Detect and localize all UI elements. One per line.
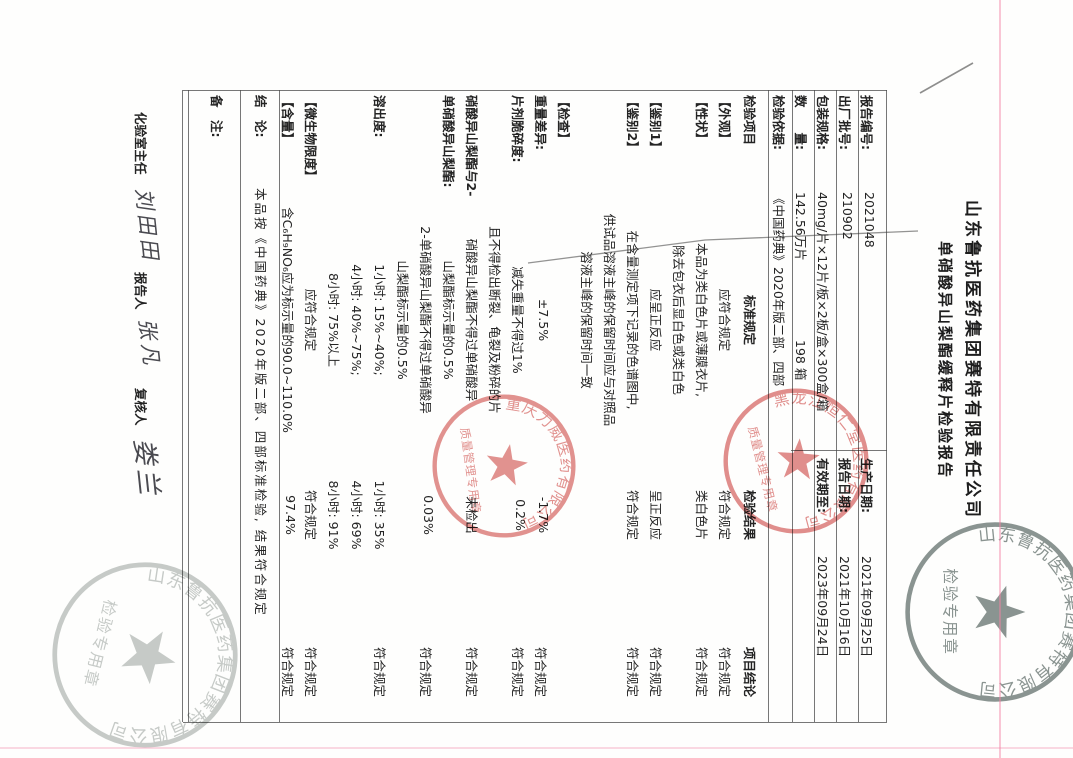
cell-result: 符合规定	[624, 435, 643, 595]
reporter-signature: 张凡	[132, 317, 167, 370]
table-row: 重量差异:±7.5%-1.7%符合规定	[529, 0, 551, 758]
cell-conclusion: 项目结论	[741, 602, 760, 742]
header-field-label: 出厂批号:	[836, 95, 855, 150]
table-row: 【检查】	[552, 0, 574, 758]
seal-caption: 检验专用章	[940, 568, 959, 655]
header-field-value: 《中国药典》2020年版二部、四部	[770, 192, 789, 386]
table-row: 4小时: 40%~75%;4小时: 69%	[345, 0, 367, 758]
cell-standard: 除去包衣后显白色或类白色	[670, 190, 689, 450]
cell-standard: 应呈正反应	[647, 190, 666, 450]
header-field-label: 包装规格:	[814, 95, 833, 150]
cell-standard: 8小时: 75%以上	[325, 190, 344, 450]
table-row: 片剂脆碎度:减失重量不得过1%0.2%符合规定	[506, 0, 528, 758]
seal-caption: 质量管理专用章	[457, 427, 483, 515]
header-field-row: 检验依据:《中国药典》2020年版二部、四部	[769, 0, 789, 758]
cell-standard: 1小时: 15%~40%;	[371, 190, 390, 450]
table-row: 【含量】含C₆H₉NO₆应为标示量的90.0~110.0%97.4%符合规定	[276, 0, 298, 758]
table-row: 【鉴别1】应呈正反应呈正反应符合规定	[644, 0, 666, 758]
cell-result: 8小时: 91%	[325, 435, 344, 595]
table-border-top	[886, 90, 887, 722]
document-page: 山东鲁抗医药集团赛特有限责任公司 单硝酸异山梨酯缓释片检验报告 报告编号:202…	[0, 0, 1073, 758]
seal-caption: 检验专用章	[80, 598, 120, 690]
star-icon	[119, 624, 182, 689]
remark-label: 备 注:	[209, 95, 223, 138]
table-row: 山梨酯标示量的0.5%	[391, 0, 413, 758]
cell-conclusion: 符合规定	[693, 602, 712, 742]
reporter-label: 报告人	[132, 272, 151, 310]
cell-standard: 应符合规定	[302, 190, 321, 450]
header-field-row: 数 量:142.56万片198 箱	[791, 0, 811, 758]
header-field-value: 210902	[840, 192, 855, 240]
cell-result: 97.4%	[283, 435, 298, 595]
cell-conclusion: 符合规定	[371, 602, 390, 742]
table-row: 2-单硝酸异山梨酯不得过单硝酸异0.03%符合规定	[414, 0, 436, 758]
table-row: 供试品溶液主峰的保留时间应与对照品	[598, 0, 620, 758]
table-row: 【微生物限度】应符合规定符合规定符合规定	[299, 0, 321, 758]
scanned-report-canvas: 山东鲁抗医药集团赛特有限责任公司 单硝酸异山梨酯缓释片检验报告 报告编号:202…	[0, 0, 1073, 758]
star-icon	[486, 442, 531, 489]
cell-standard: 含C₆H₉NO₆应为标示量的90.0~110.0%	[279, 190, 298, 450]
header-field-value: 2021年10月16日	[836, 556, 855, 657]
conclusion-label: 结 论:	[253, 95, 267, 138]
table-row: 且不得检出断裂、龟裂及粉碎的片	[483, 0, 505, 758]
cell-standard: 供试品溶液主峰的保留时间应与对照品	[601, 190, 620, 450]
cell-conclusion: 符合规定	[509, 602, 528, 742]
table-row: 单硝酸异山梨酯:山梨酯标示量的0.5%	[437, 0, 459, 758]
header-field-value: 2023年09月24日	[814, 556, 833, 657]
reviewer-label: 复核人	[132, 388, 151, 426]
table-row: 溶出度:1小时: 15%~40%;1小时: 35%符合规定	[368, 0, 390, 758]
cell-result: 符合规定	[302, 435, 321, 595]
table-row: 硝酸异山梨酯与2-硝酸异山梨酯不得过单硝酸异未检出符合规定	[460, 0, 482, 758]
cell-result: 1小时: 35%	[371, 435, 390, 595]
star-icon	[975, 586, 1025, 638]
header-field-row: 报告编号:2021048生产日期:2021年09月25日	[857, 0, 877, 758]
table-row: 除去包衣后显白色或类白色	[667, 0, 689, 758]
cell-conclusion: 符合规定	[647, 602, 666, 742]
header-field-value: 142.56万片	[792, 192, 811, 261]
cell-item: 【检查】	[555, 95, 574, 255]
table-row: 溶液主峰的保留时间一致	[575, 0, 597, 758]
seal-caption: 质量管理专用章	[745, 425, 780, 514]
star-icon	[776, 435, 825, 486]
red-quality-stamp-2: 重庆力威医药有限公司 质量管理专用章	[422, 384, 587, 549]
inspection-seal-stamp: 山东鲁抗医药集团赛特有限公司 检验专用章	[903, 520, 1073, 704]
cell-conclusion: 符合规定	[716, 602, 735, 742]
cell-conclusion: 符合规定	[463, 602, 482, 742]
cell-result: 4小时: 69%	[348, 435, 367, 595]
lab-director-signature: 刘田田	[129, 187, 167, 265]
header-field-extra: 198 箱	[792, 340, 811, 380]
cell-standard: 山梨酯标示量的0.5%	[394, 190, 413, 450]
table-header-row: 检验项目标准规定检验结果项目结论	[738, 0, 760, 758]
table-row: 8小时: 75%以上8小时: 91%	[322, 0, 344, 758]
cell-conclusion: 符合规定	[417, 602, 436, 742]
reviewer-signature: 娄兰	[127, 436, 170, 500]
header-field-label: 检验依据:	[770, 95, 789, 150]
header-field-label: 报告编号:	[858, 95, 877, 150]
lab-director-label: 化验室主任	[132, 112, 151, 175]
company-seal-stamp: 山东鲁抗医药集团赛特有限公司 检验专用章	[30, 540, 260, 758]
table-row: 【鉴别2】在含量测定项下记录的色谱图中,符合规定符合规定	[621, 0, 643, 758]
cell-conclusion: 符合规定	[624, 602, 643, 742]
table-row: 【外观】应符合规定符合规定符合规定	[713, 0, 735, 758]
table-row: 【性状】本品为类白色片或薄膜衣片,类白色片符合规定	[690, 0, 712, 758]
cell-conclusion: 符合规定	[302, 602, 321, 742]
conclusion-text: 本品按《中国药典》2020年版二部、四部标准检验, 结果符合规定	[253, 188, 267, 617]
cell-conclusion: 符合规定	[532, 602, 551, 742]
header-field-value: 2021048	[862, 192, 877, 248]
cell-standard: 4小时: 40%~75%;	[348, 190, 367, 450]
header-field-value: 2021年09月25日	[858, 556, 877, 657]
cell-standard: 在含量测定项下记录的色谱图中,	[624, 190, 643, 450]
cell-result: 呈正反应	[647, 435, 666, 595]
cell-result: 类白色片	[693, 435, 712, 595]
cell-conclusion: 符合规定	[279, 602, 298, 742]
cell-standard: 溶液主峰的保留时间一致	[578, 190, 597, 450]
svg-text:山东鲁抗医药集团赛特有限公司: 山东鲁抗医药集团赛特有限公司	[105, 563, 254, 758]
header-field-label: 数 量:	[792, 95, 811, 150]
seal-arc-text: 山东鲁抗医药集团赛特有限公司	[105, 563, 254, 758]
